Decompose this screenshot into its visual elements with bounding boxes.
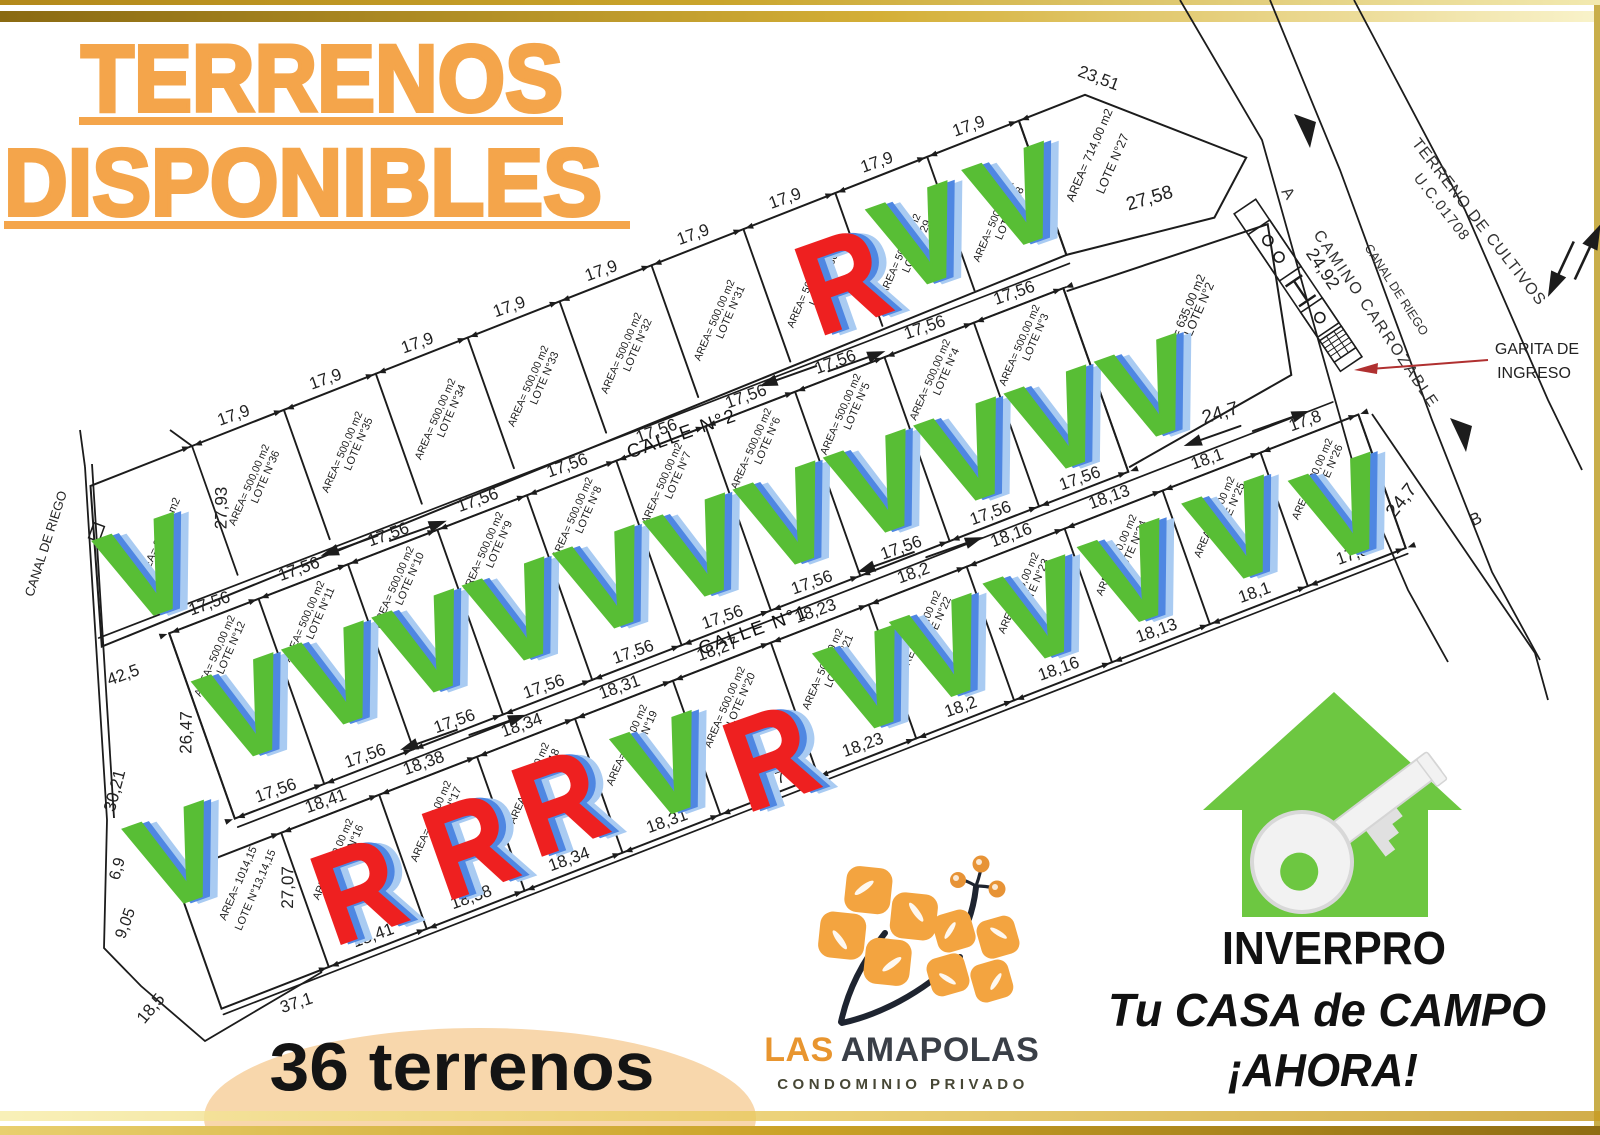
svg-text:TERRENOS: TERRENOS	[81, 26, 563, 132]
svg-text:27,93: 27,93	[212, 487, 231, 530]
svg-text:INGRESO: INGRESO	[1497, 365, 1571, 382]
svg-text:26,47: 26,47	[176, 711, 195, 754]
svg-text:GARITA DE: GARITA DE	[1495, 341, 1579, 358]
svg-text:¡AHORA!: ¡AHORA!	[1228, 1044, 1418, 1096]
svg-text:AMAPOLAS: AMAPOLAS	[841, 1031, 1040, 1069]
svg-text:27,07: 27,07	[278, 866, 297, 909]
svg-text:DISPONIBLES: DISPONIBLES	[4, 130, 602, 236]
svg-text:LAS: LAS	[764, 1031, 834, 1069]
svg-text:Tu CASA de CAMPO: Tu CASA de CAMPO	[1108, 984, 1546, 1036]
svg-text:CONDOMINIO PRIVADO: CONDOMINIO PRIVADO	[777, 1076, 1029, 1093]
svg-text:36 terrenos: 36 terrenos	[270, 1029, 655, 1105]
svg-text:INVERPRO: INVERPRO	[1222, 922, 1446, 974]
